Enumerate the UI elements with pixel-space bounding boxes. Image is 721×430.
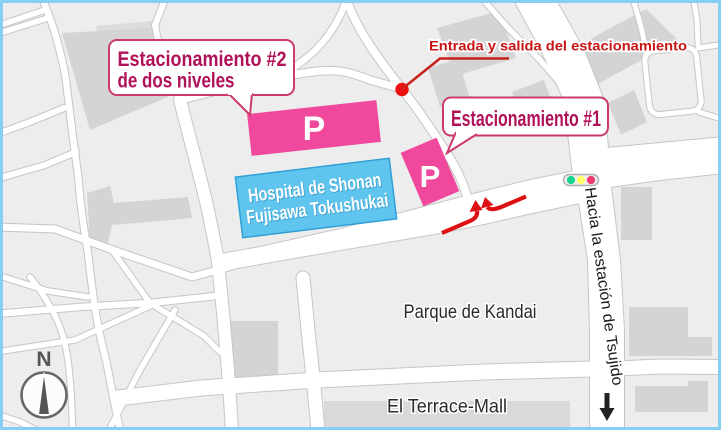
svg-text:P: P	[420, 159, 441, 194]
svg-text:de dos niveles: de dos niveles	[118, 69, 235, 93]
svg-text:Estacionamiento #2: Estacionamiento #2	[118, 47, 287, 71]
svg-text:Parque de Kandai: Parque de Kandai	[404, 301, 537, 323]
svg-text:N: N	[36, 348, 51, 371]
svg-text:P: P	[303, 110, 326, 148]
svg-text:Entrada y salida del estaciona: Entrada y salida del estacionamiento	[429, 39, 687, 54]
svg-text:El Terrace-Mall: El Terrace-Mall	[387, 397, 507, 418]
svg-text:Estacionamiento #1: Estacionamiento #1	[451, 106, 601, 131]
